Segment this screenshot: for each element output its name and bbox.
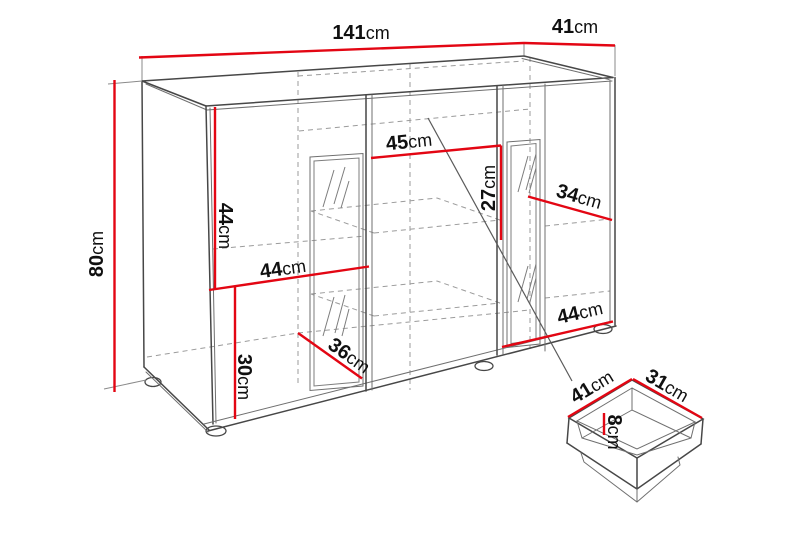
dimension-line-right-section-width — [502, 322, 613, 348]
right-glass-panel — [507, 140, 540, 348]
dimension-diagram: 141cm 41cm 80cm 44cm 44cm 30cm 45cm 27cm… — [0, 0, 800, 533]
cabinet-foot — [475, 362, 493, 371]
dimension-line-width — [139, 43, 524, 58]
drawer-height-label: 8cm — [603, 414, 625, 449]
dimension-right-door-width-label: 34cm — [554, 180, 605, 214]
dimension-bottom-section-height-label: 30cm — [233, 354, 255, 400]
dimension-height-label: 80cm — [86, 231, 108, 277]
dimension-center-shelf-height-label: 27cm — [478, 165, 500, 211]
dimension-left-section-width-label: 44cm — [259, 255, 308, 283]
dimension-center-shelf-width-label: 45cm — [385, 129, 433, 156]
dimension-line-depth — [524, 43, 615, 46]
dimension-left-section-height-label: 44cm — [214, 203, 236, 249]
glass-hatch-icon — [323, 167, 349, 336]
glass-hatch-icon — [518, 154, 536, 302]
dimension-diagram-page: 141cm 41cm 80cm 44cm 44cm 30cm 45cm 27cm… — [0, 0, 800, 533]
drawer-depth-label: 31cm — [641, 365, 692, 407]
cabinet-outline — [142, 56, 616, 432]
dimension-depth-label: 41cm — [552, 16, 598, 38]
dimension-width-label: 141cm — [332, 22, 389, 44]
